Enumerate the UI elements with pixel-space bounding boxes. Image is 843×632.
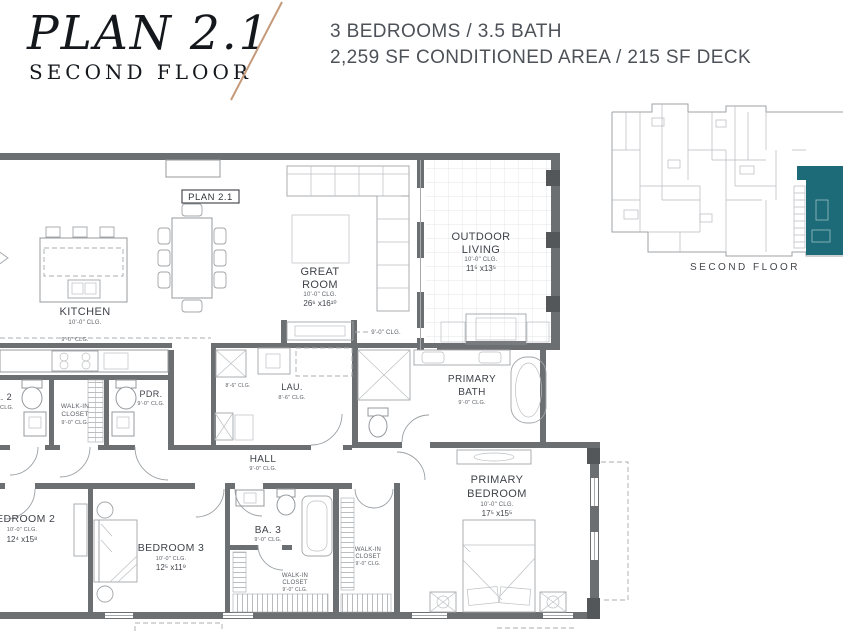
- main-floor-plan: PLAN 2.1: [0, 153, 628, 631]
- svg-text:BEDROOM: BEDROOM: [467, 488, 527, 500]
- svg-text:26⁶ x16¹⁰: 26⁶ x16¹⁰: [303, 299, 336, 308]
- key-plan-highlight-tab: [797, 166, 806, 180]
- svg-text:BEDROOM 3: BEDROOM 3: [138, 542, 205, 554]
- bath2-label: BA. 2 9'-0" CLG.: [0, 392, 14, 411]
- svg-text:9'-0" CLG.: 9'-0" CLG.: [61, 420, 89, 426]
- svg-text:ROOM: ROOM: [302, 279, 338, 291]
- svg-text:KITCHEN: KITCHEN: [59, 306, 110, 318]
- svg-text:WALK-IN: WALK-IN: [282, 573, 308, 579]
- svg-text:9'-0" CLG.: 9'-0" CLG.: [0, 405, 14, 411]
- svg-text:9'-0" CLG.: 9'-0" CLG.: [137, 401, 165, 407]
- svg-text:BATH: BATH: [458, 387, 486, 398]
- laundry-fixtures: [215, 348, 352, 440]
- buffet-niche: [166, 160, 220, 177]
- powder-label: PDR. 9'-0" CLG.: [137, 389, 165, 407]
- dining-table: [158, 204, 226, 312]
- svg-text:9'-0" CLG.: 9'-0" CLG.: [355, 561, 380, 567]
- area-rug: [292, 215, 349, 263]
- primary-bedroom-label: PRIMARY BEDROOM 10'-0" CLG. 17⁵ x15⁵: [467, 474, 527, 518]
- svg-text:WALK-IN: WALK-IN: [355, 547, 381, 553]
- key-plan: SECOND FLOOR: [612, 104, 843, 273]
- key-plan-detail-rects: [624, 118, 754, 222]
- primary-bath-label: PRIMARY BATH 9'-0" CLG.: [448, 374, 496, 406]
- bath3-label: BA. 3 9'-0" CLG.: [254, 525, 282, 543]
- plan-label-text: PLAN 2.1: [188, 192, 233, 203]
- svg-text:BEDROOM 2: BEDROOM 2: [0, 513, 55, 525]
- kitchen-island: [40, 227, 127, 302]
- walkin-bed3-racks: [233, 552, 328, 612]
- plan-label-box: PLAN 2.1: [182, 190, 239, 203]
- primary-bath-fixtures: [358, 350, 546, 437]
- svg-text:10'-0" CLG.: 10'-0" CLG.: [7, 527, 38, 533]
- clipped-marker: [0, 248, 8, 268]
- bedroom3-label: BEDROOM 3 10'-0" CLG. 12⁵ x11⁹: [138, 542, 205, 572]
- svg-text:PRIMARY: PRIMARY: [448, 374, 496, 385]
- great-room-label: GREAT ROOM 10'-0" CLG. 26⁶ x16¹⁰: [300, 266, 339, 308]
- walkin-bed2-rack: [88, 380, 103, 442]
- svg-text:9'-0" CLG.: 9'-0" CLG.: [458, 400, 486, 406]
- svg-text:BA. 2: BA. 2: [0, 392, 12, 402]
- accent-divider-line: [231, 2, 282, 100]
- svg-text:BA. 3: BA. 3: [255, 525, 281, 536]
- bath2-fixtures: [22, 380, 46, 436]
- svg-text:HALL: HALL: [250, 454, 277, 465]
- powder-fixtures: [112, 380, 136, 436]
- svg-text:17⁵ x15⁵: 17⁵ x15⁵: [482, 509, 513, 518]
- svg-text:PRIMARY: PRIMARY: [471, 474, 524, 486]
- svg-text:PDR.: PDR.: [139, 389, 162, 399]
- svg-text:CLOSET: CLOSET: [61, 411, 88, 418]
- bedroom2-dresser: [74, 504, 87, 556]
- svg-text:LIVING: LIVING: [462, 244, 500, 256]
- svg-text:9'-0" CLG.: 9'-0" CLG.: [249, 466, 277, 472]
- hall-label: HALL 9'-0" CLG.: [249, 454, 277, 472]
- kitchen-label: KITCHEN 10'-0" CLG.: [59, 306, 110, 326]
- svg-text:CLOSET: CLOSET: [355, 554, 380, 560]
- great-room-fireplace: [287, 322, 353, 340]
- svg-text:12⁵ x11⁹: 12⁵ x11⁹: [156, 563, 186, 572]
- laundry-label: LAU. 8'-6" CLG.: [278, 382, 306, 401]
- svg-text:10'-0" CLG.: 10'-0" CLG.: [464, 257, 497, 263]
- floor-plan-drawing: SECOND FLOOR: [0, 0, 843, 632]
- svg-text:10'-0" CLG.: 10'-0" CLG.: [480, 502, 513, 508]
- walkin-bed3-label: WALK-IN CLOSET 9'-0" CLG.: [282, 573, 308, 593]
- soffit-label-mud: 8'-6" CLG.: [225, 383, 250, 389]
- svg-text:10'-0" CLG.: 10'-0" CLG.: [303, 292, 336, 298]
- svg-text:11⁵ x13⁵: 11⁵ x13⁵: [466, 264, 496, 273]
- key-plan-caption: SECOND FLOOR: [690, 262, 800, 273]
- svg-text:LAU.: LAU.: [281, 382, 303, 392]
- svg-text:9'-0" CLG.: 9'-0" CLG.: [254, 537, 282, 543]
- bedroom3-bed: [94, 502, 137, 602]
- soffit-label-great: 9'-0" CLG.: [371, 330, 401, 336]
- svg-text:9'-0" CLG.: 9'-0" CLG.: [282, 587, 307, 593]
- kitchen-counter: [0, 350, 168, 372]
- walkin-bed2-label: WALK-IN CLOSET 9'-0" CLG.: [61, 403, 89, 426]
- walkin-primary-label: WALK-IN CLOSET 9'-0" CLG.: [355, 547, 381, 567]
- svg-text:GREAT: GREAT: [300, 266, 339, 278]
- soffit-label-kitchen: 9'-0" CLG.: [61, 337, 89, 343]
- svg-text:CLOSET: CLOSET: [282, 580, 307, 586]
- svg-text:10'-0" CLG.: 10'-0" CLG.: [156, 556, 187, 562]
- svg-text:8'-6" CLG.: 8'-6" CLG.: [278, 395, 306, 401]
- svg-text:OUTDOOR: OUTDOOR: [451, 231, 510, 243]
- svg-text:10'-0" CLG.: 10'-0" CLG.: [68, 320, 101, 326]
- primary-bed: [430, 520, 566, 612]
- key-plan-stair: [794, 186, 805, 248]
- svg-text:12⁴ x15⁸: 12⁴ x15⁸: [7, 535, 38, 544]
- svg-text:WALK-IN: WALK-IN: [61, 403, 89, 410]
- primary-dresser: [457, 450, 531, 464]
- bedroom2-label: BEDROOM 2 10'-0" CLG. 12⁴ x15⁸: [0, 513, 55, 544]
